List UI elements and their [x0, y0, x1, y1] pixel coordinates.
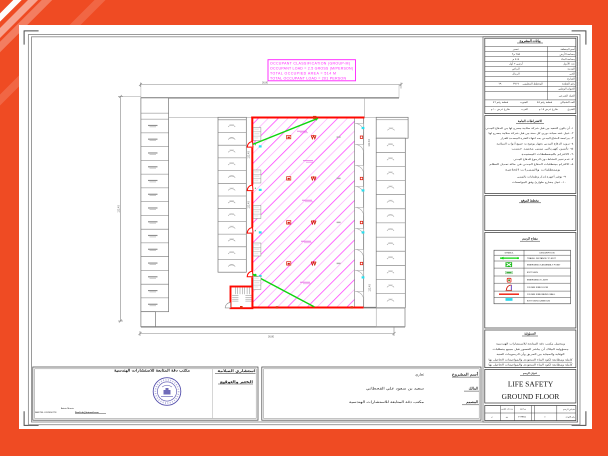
svg-text:122.40: 122.40	[117, 205, 120, 213]
svg-text:المسؤولية: المسؤولية	[524, 332, 536, 336]
svg-text:٣٧١٧: ٣٧١٧	[513, 83, 519, 86]
svg-text:المالك: المالك	[469, 386, 478, 391]
svg-text:مقياس الرسم: مقياس الرسم	[563, 408, 575, 411]
svg-text:٢٠٢٣/٠٥: ٢٠٢٣/٠٥	[518, 416, 525, 419]
svg-text:مساحة البناء: مساحة البناء	[561, 57, 575, 61]
svg-text:LIFE SAFETY: LIFE SAFETY	[508, 380, 554, 389]
svg-text:الرمال: الرمال	[512, 72, 520, 76]
svg-text:سعيد بن سعود علي القحطاني: سعيد بن سعود علي القحطاني	[366, 386, 425, 391]
svg-text:الشرق: الشرق	[567, 107, 575, 111]
svg-text:122.40: 122.40	[369, 284, 372, 292]
svg-text:٥١٤ م: ٥١٤ م	[513, 58, 520, 61]
svg-text:122.40: 122.40	[247, 151, 250, 159]
svg-text:رقم القطعة: رقم القطعة	[562, 82, 576, 86]
svg-text:36.80: 36.80	[268, 335, 275, 338]
svg-text:الحد الشمالي: الحد الشمالي	[560, 100, 575, 104]
svg-text:FAX/TEL 0112650778: FAX/TEL 0112650778	[35, 411, 57, 414]
svg-text:EXIT SIGN: EXIT SIGN	[527, 272, 538, 274]
svg-text:120 MIN FIRE DOOR: 120 MIN FIRE DOOR	[527, 287, 548, 289]
svg-text:٢- عمل عقد صيانة دوري كل سنة م: ٢- عمل عقد صيانة دوري كل سنة من قبل شركة…	[488, 131, 574, 135]
svg-text:عسير: عسير	[512, 48, 520, 51]
svg-text:122.40: 122.40	[247, 201, 250, 209]
svg-text:OCCUPANT CLASSIFICATION (GROUP: OCCUPANT CLASSIFICATION (GROUP-M)	[270, 62, 350, 66]
svg-text:الرياض: الرياض	[512, 67, 520, 71]
svg-text:تجاري: تجاري	[415, 372, 424, 377]
svg-text:TOTAL OCCUPIED AREA = 514 M: TOTAL OCCUPIED AREA = 514 M	[270, 71, 336, 75]
svg-text:SYMBOL: SYMBOL	[504, 253, 514, 255]
svg-text:الاشتراطات العامة: الاشتراطات العامة	[518, 119, 542, 123]
svg-text:١٠- عمل مخارج طوارئ وفق المواص: ١٠- عمل مخارج طوارئ وفق المواصفات	[512, 180, 566, 184]
svg-text:الجنوب: الجنوب	[520, 100, 528, 104]
svg-text:عدد الأدوار: عدد الأدوار	[562, 62, 575, 66]
svg-text:٦- الالتزام بالمخططات المعتمدة: ٦- الالتزام بالمخططات المعتمدة	[522, 152, 575, 156]
svg-text:DESCRIPTION: DESCRIPTION	[540, 253, 555, 255]
svg-text:المدينة: المدينة	[567, 67, 575, 71]
svg-text:٨- الالتزام بمتطلبات الدفاع ال: ٨- الالتزام بمتطلبات الدفاع المدني في حا…	[490, 162, 575, 166]
svg-text:الشارع: الشارع	[567, 77, 575, 81]
svg-text:وحدات قياس: وحدات قياس	[501, 407, 512, 410]
svg-text:رقم اللوحة: رقم اللوحة	[566, 416, 575, 419]
svg-text:مكتب دقة المتابعة للاستشارات ا: مكتب دقة المتابعة للاستشارات الهندسية	[349, 399, 424, 404]
svg-text:المخطط التنظيمي: المخطط التنظيمي	[523, 82, 544, 86]
svg-text:قطعة رقم ٤٥: قطعة رقم ٤٥	[537, 100, 553, 104]
svg-text:٤: ٤	[544, 416, 545, 419]
svg-text:أسم المشروع: أسم المشروع	[452, 371, 478, 378]
svg-text:36.80: 36.80	[262, 81, 269, 84]
svg-text:OCCUPANT LOAD = 2.5 GROSS (M/P: OCCUPANT LOAD = 2.5 GROSS (M/PERSON)	[270, 67, 353, 71]
svg-text:EMERGENCY LIGHT: EMERGENCY LIGHT	[527, 279, 549, 281]
svg-text:العنوان الوطني: العنوان الوطني	[558, 87, 575, 91]
svg-text:GROUND FLOOR: GROUND FLOOR	[502, 392, 560, 401]
svg-text:شارع عرض ١٠ م: شارع عرض ١٠ م	[491, 107, 511, 111]
svg-text:كاملة ومطابقة لكود البناء السع: كاملة ومطابقة لكود البناء السعودي والموا…	[488, 357, 573, 361]
svg-text:مم: مم	[506, 417, 509, 419]
svg-text:مساحة الأرض: مساحة الأرض	[560, 52, 576, 56]
svg-text:مراجعة: مراجعة	[520, 407, 526, 410]
svg-text:ويتحمل مكتب دقة المتابعة للاست: ويتحمل مكتب دقة المتابعة للاستشارات الهن…	[496, 342, 566, 346]
svg-text:عنوان الرسم: عنوان الرسم	[523, 371, 538, 375]
svg-text:الحي: الحي	[569, 72, 575, 76]
svg-text:بيانات المشروع: بيانات المشروع	[519, 39, 540, 43]
svg-text:Autair Murais: Autair Murais	[61, 407, 75, 410]
svg-text:مفتاح الرسم: مفتاح الرسم	[522, 237, 538, 241]
svg-text:الصك الشرعي: الصك الشرعي	[559, 94, 575, 98]
svg-text:ومتطلبات والممرات الخاصة: ومتطلبات والممرات الخاصة	[505, 167, 561, 171]
svg-text:120 MIN FIRE RATED WALL: 120 MIN FIRE RATED WALL	[527, 293, 556, 296]
svg-text:كاملة ومطابقة لكود البناء السع: كاملة ومطابقة لكود البناء السعودي والموا…	[488, 363, 573, 367]
svg-text:قطعة رقم ٤٦: قطعة رقم ٤٦	[493, 100, 509, 104]
svg-text:٣- مراجعة الدفاع المدني بعد ان: ٣- مراجعة الدفاع المدني بعد انتهاء الفتر…	[499, 136, 574, 140]
svg-text:TOTAL OCCUPANT LOAD = 201 PERS: TOTAL OCCUPANT LOAD = 201 PERSON	[270, 76, 346, 80]
svg-text:الغرب: الغرب	[521, 107, 528, 111]
svg-text:TRAVEL DISTANCE TO EXIT: TRAVEL DISTANCE TO EXIT	[527, 257, 556, 260]
svg-text:EXIT SIGN LUMINOUS: EXIT SIGN LUMINOUS	[527, 300, 550, 302]
svg-text:مخطط الموقع: مخطط الموقع	[521, 198, 539, 202]
svg-text:122.40: 122.40	[368, 139, 371, 147]
svg-text:٧- عدم تغيير النشاط دون الرجوع: ٧- عدم تغيير النشاط دون الرجوع للدفاع ال…	[514, 157, 575, 161]
svg-text:٦٥٥ م٢: ٦٥٥ م٢	[512, 53, 521, 56]
svg-text:شارع عرض ١٥ م: شارع عرض ١٥ م	[539, 107, 559, 111]
svg-text:EMERGENCY ASSEMBLY POINT: EMERGENCY ASSEMBLY POINT	[527, 263, 561, 266]
